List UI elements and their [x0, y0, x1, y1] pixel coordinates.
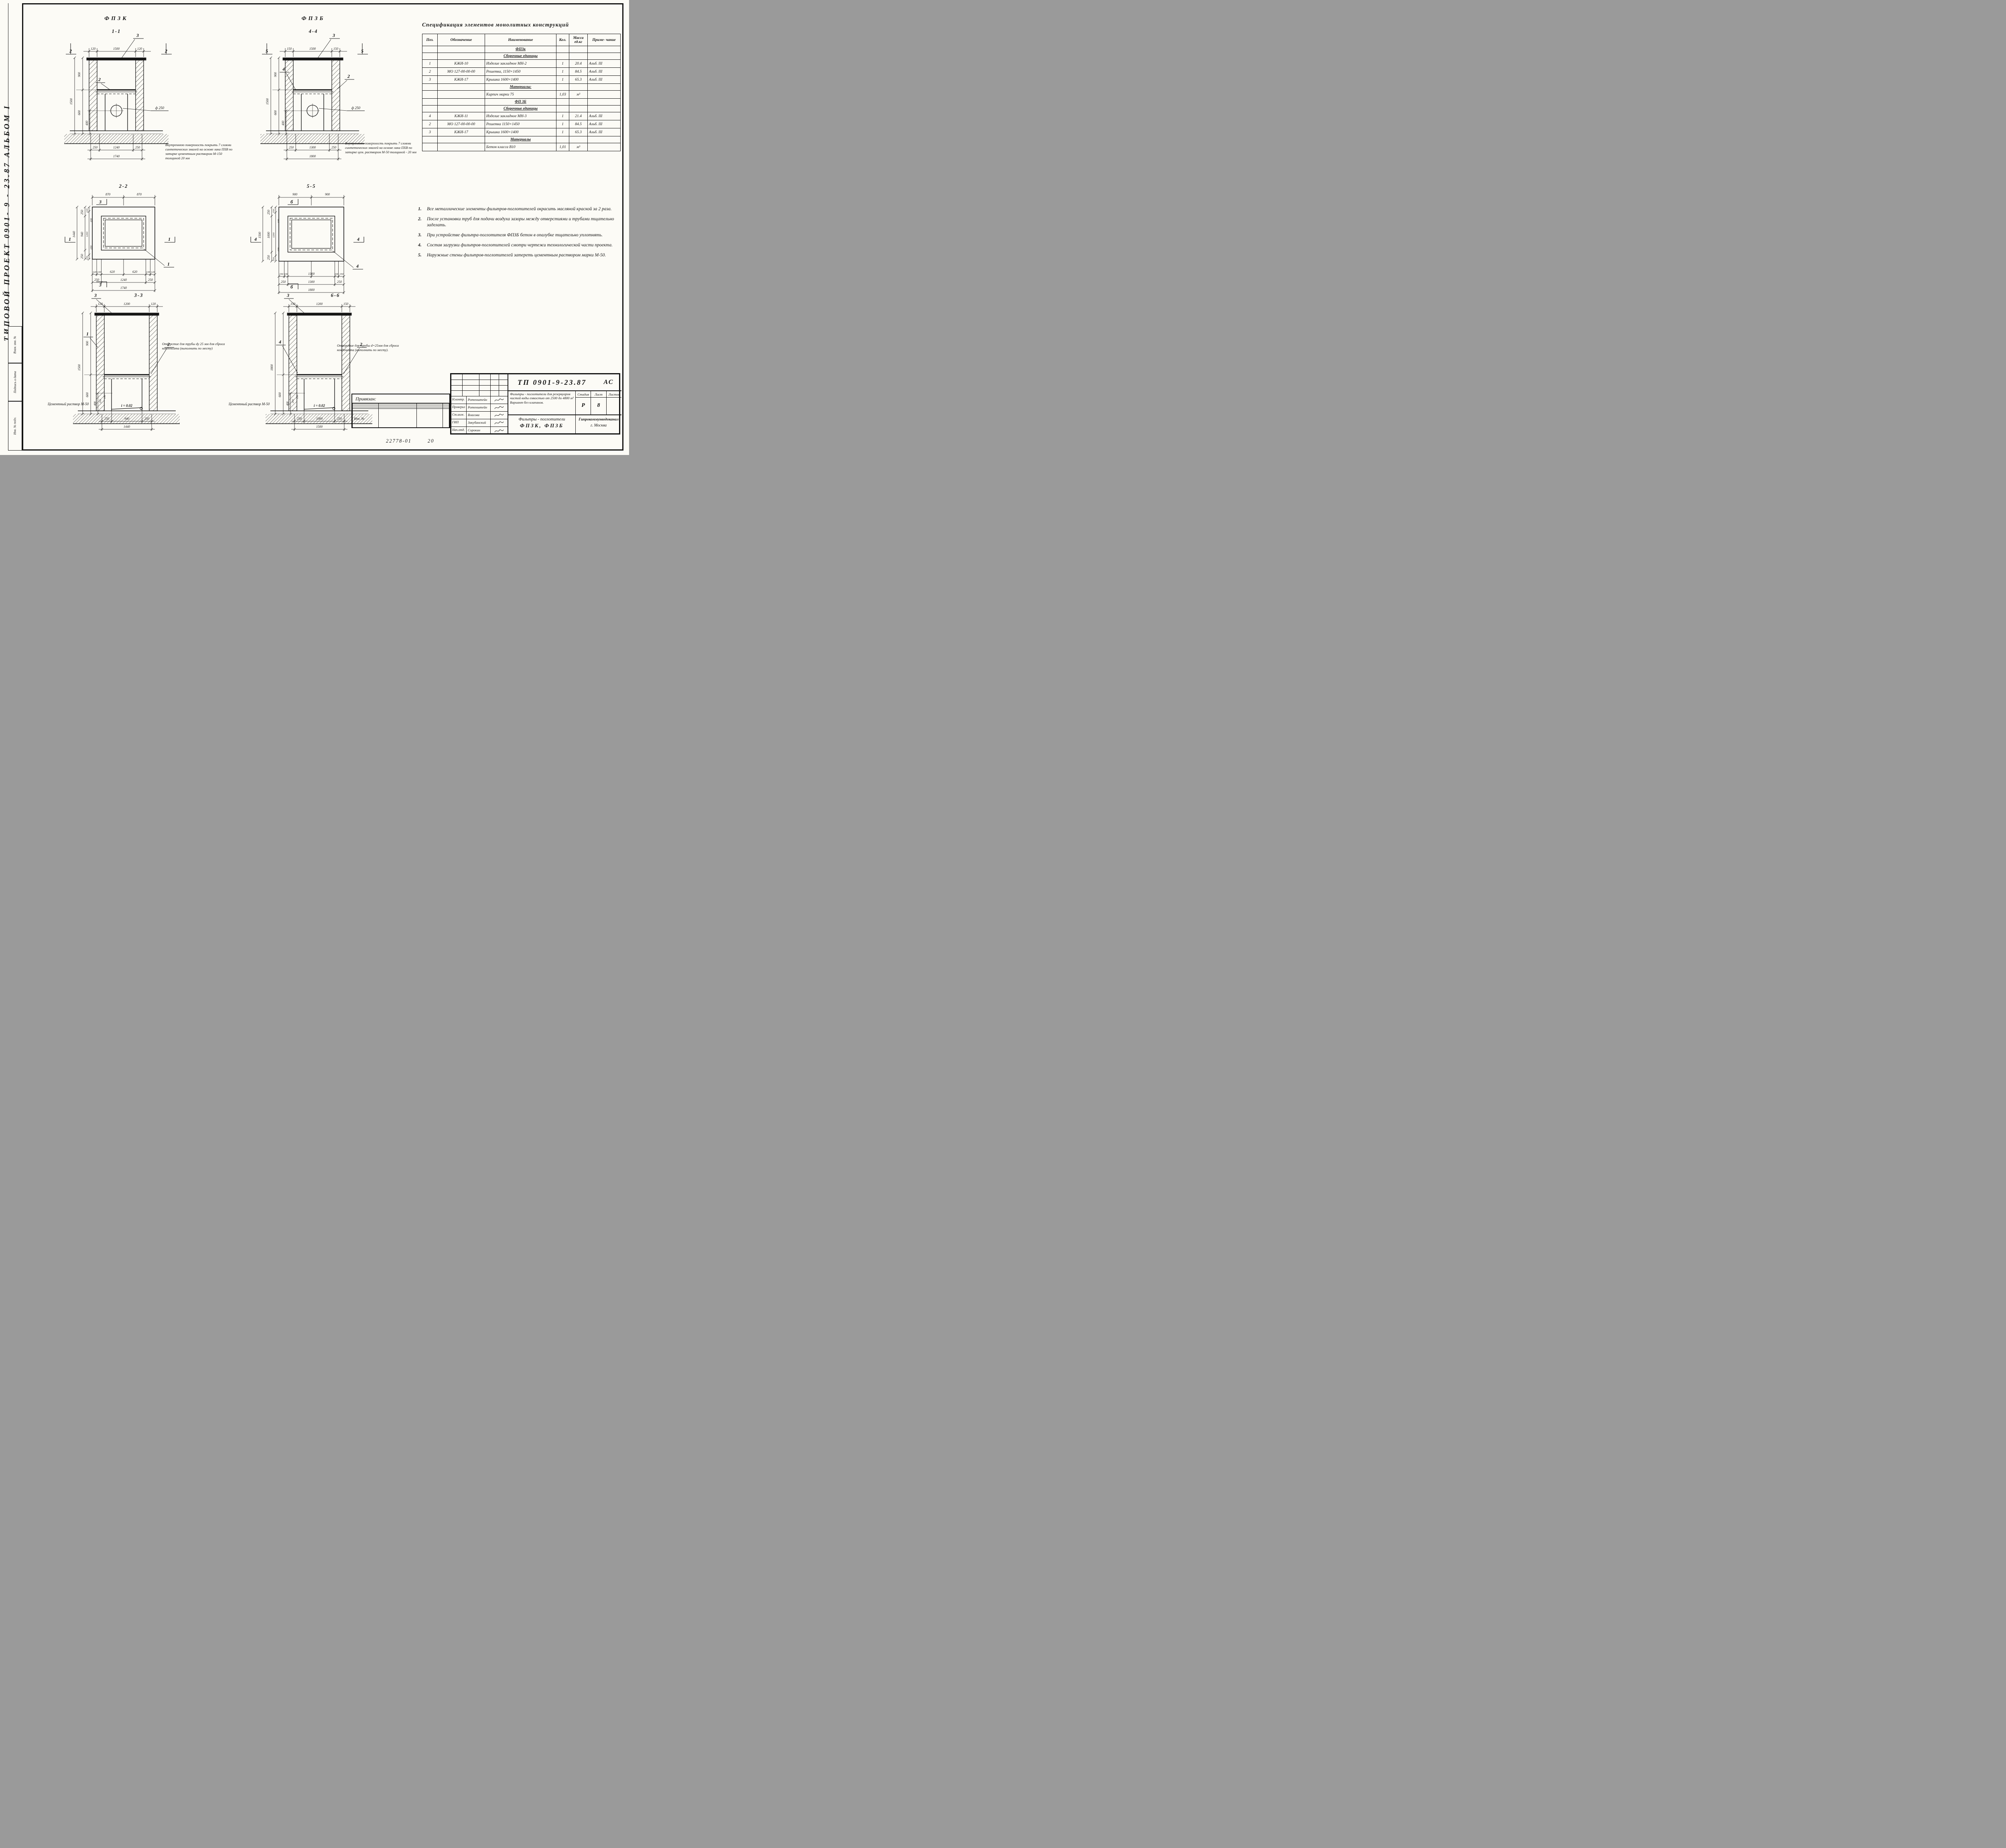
attach-box: Привязан: Инв. №	[351, 394, 450, 428]
dim-label: 870	[106, 193, 110, 196]
cell-mass: 21.4	[569, 112, 588, 120]
note-item: 1. Все металлические элементы фильтров-п…	[418, 206, 625, 212]
section-marker: 3	[99, 199, 102, 205]
signature-scribble	[491, 427, 508, 435]
dim-label: 600	[274, 110, 277, 115]
general-notes: 1. Все металлические элементы фильтров-п…	[418, 206, 625, 262]
cell-note	[588, 46, 621, 53]
dim-label: 1500	[69, 98, 73, 105]
dim-label: 1500	[258, 232, 262, 238]
archive-page: 20	[428, 438, 434, 444]
cell-pos: 4	[422, 112, 438, 120]
note-text: При устройстве фильтра-поглотителя ФПЗБ …	[427, 232, 603, 238]
col-header-mass: Масса ед.кг	[569, 34, 588, 46]
dim-label: 130	[97, 271, 102, 274]
note-number: 5.	[418, 252, 427, 258]
dim-label: 900	[85, 341, 89, 346]
dim-label: 1740	[120, 286, 127, 290]
dim-label: 250	[289, 146, 294, 149]
cell-mass: 84.5	[569, 68, 588, 76]
cell-note	[588, 84, 621, 91]
callout-1: 1	[167, 261, 170, 267]
dim-label: 150	[279, 273, 284, 276]
dim-label: 1500	[266, 98, 269, 105]
dim-label: 1500	[309, 47, 316, 51]
cell-qty: 1	[556, 112, 569, 120]
table-row: Материалы	[422, 136, 621, 143]
cell-qty: 1	[556, 76, 569, 84]
note-text: После установки труб для подачи воздуха …	[427, 216, 625, 228]
callout-3: 3	[332, 32, 335, 38]
dim-label: 1800	[270, 364, 274, 371]
drawing-name-cell: Фильтры - поглотители ФПЗК, ФПЗБ	[508, 415, 576, 435]
cell-pos	[422, 53, 438, 60]
cell-pos: 1	[422, 60, 438, 68]
dim-label: 1440	[72, 231, 76, 238]
table-row: Кирпич марки 75 1,03 м³	[422, 91, 621, 99]
cell-mass: 20.4	[569, 60, 588, 68]
side-box-inv: Инв. № подл.	[8, 401, 22, 451]
cell-qty	[556, 53, 569, 60]
cell-name: Материалы	[485, 136, 556, 143]
callout-4: 4	[282, 66, 285, 72]
signature-row: Н.контр. Ротенштейн	[451, 396, 508, 404]
cell-name: Изделие закладное МН-2	[485, 60, 556, 68]
dim-label: 250	[104, 417, 109, 420]
dim-label: 250	[135, 146, 140, 149]
cell-pos: 3	[422, 76, 438, 84]
dim-label: 250	[292, 399, 294, 403]
table-row: 3 КЖИ-17 Крышка 1600×1400 1 65.3 Альб. I…	[422, 128, 621, 136]
cell-qty: 1	[556, 120, 569, 128]
signature-scribble	[491, 404, 508, 411]
dim-label: 250	[337, 280, 342, 284]
sheets-value	[607, 398, 621, 414]
table-row: ФП 3Б	[422, 99, 621, 106]
cell-qty: 1	[556, 68, 569, 76]
cell-mark	[438, 46, 485, 53]
col-header-note: Приме- чание	[588, 34, 621, 46]
cell-qty: 1,01	[556, 143, 569, 151]
document-number: ТП 0901-9-23.87	[508, 378, 596, 387]
organization-cell: Гипрокоммунводоканал г. Москва	[576, 415, 621, 435]
cell-pos	[422, 136, 438, 143]
dim-label: 1240	[120, 278, 127, 282]
dim-label: 600	[85, 392, 89, 397]
revision-grid	[451, 374, 508, 396]
linework-2-2	[65, 195, 175, 292]
view-plan-5-5: 5-5	[223, 181, 379, 306]
section-label-5-5: 5-5	[307, 183, 316, 189]
col-header-qty: Кол.	[556, 34, 569, 46]
cell-mark	[438, 106, 485, 112]
dim-label: 250	[331, 146, 336, 149]
title-block: ТП 0901-9-23.87 АС Фильтры - поглотители…	[450, 373, 620, 435]
dim-label: 900	[325, 193, 330, 196]
cell-mass: м³	[569, 143, 588, 151]
dim-label: 1000	[267, 232, 270, 238]
note-item: 3. При устройстве фильтра-поглотителя ФП…	[418, 232, 625, 238]
dim-label: 1200	[124, 302, 130, 306]
organization-name: Гипрокоммунводоканал	[576, 418, 621, 422]
callout-1: 1	[86, 331, 89, 337]
signature-rows: Н.контр. Ротенштейн Проверил Ротенштейн	[451, 396, 508, 435]
dim-label: 1300	[309, 146, 316, 149]
note-text: Состав загрузки фильтров-поглотителей см…	[427, 242, 613, 248]
dim-label: 150	[104, 394, 106, 399]
dim-label: 100	[335, 273, 339, 276]
dim-label: 1300	[308, 272, 315, 276]
dim-label: 150	[272, 257, 275, 261]
dim-label: 400	[85, 121, 89, 126]
dim-label: 150	[343, 302, 348, 306]
signature-name: Ротенштейн	[467, 404, 491, 411]
cell-mass: м³	[569, 91, 588, 99]
section-label-1-1: 1-1	[112, 28, 121, 34]
cell-qty: 1	[556, 128, 569, 136]
dim-label: 130	[146, 271, 150, 274]
signature-scribble	[491, 412, 508, 419]
dim-label: 250	[337, 417, 342, 420]
note-number: 4.	[418, 242, 427, 248]
note-item: 4. Состав загрузки фильтров-поглотителей…	[418, 242, 625, 248]
stage-header: Стадия	[576, 391, 591, 397]
dim-label: 250	[267, 255, 270, 260]
cell-name: Крышка 1600×1400	[485, 128, 556, 136]
dim-label: 1240	[113, 146, 120, 149]
dim-label: 940	[124, 417, 129, 420]
cell-mark	[438, 53, 485, 60]
dim-label: 620	[110, 270, 115, 274]
note-text: Все металлические элементы фильтров-погл…	[427, 206, 612, 212]
dim-label: 250	[281, 280, 286, 284]
dim-label: 100	[277, 247, 280, 252]
dim-label: 120	[93, 271, 97, 274]
dim-label: 600	[77, 110, 81, 115]
dim-label: 1500	[316, 425, 323, 428]
callout-4: 4	[356, 263, 359, 269]
cell-mark	[438, 84, 485, 91]
section-marker: 4	[357, 236, 359, 242]
section-marker: 2	[164, 48, 167, 54]
document-number-cell: ТП 0901-9-23.87 АС	[508, 374, 621, 391]
dim-label: 250	[94, 278, 99, 282]
dim-label: 120	[91, 47, 95, 51]
col-header-pos: Поз.	[422, 34, 438, 46]
dim-label: 150	[333, 47, 338, 51]
cell-note: Альб. III	[588, 68, 621, 76]
section-marker: 1	[168, 236, 171, 242]
dim-label: 250	[144, 417, 149, 420]
dim-label: 900	[292, 193, 297, 196]
dim-label: 400	[281, 121, 285, 126]
dim-label: 1200	[316, 302, 323, 306]
signature-role: Ст.инж.	[451, 412, 467, 419]
callout-3: 3	[136, 32, 139, 38]
cell-pos	[422, 106, 438, 112]
cell-pos	[422, 46, 438, 53]
sheets-header: Листов	[607, 391, 621, 397]
cell-pos	[422, 143, 438, 151]
sheet-header: Лист	[591, 391, 606, 397]
dim-label: 120	[86, 256, 89, 260]
col-header-mark: Обозначение	[438, 34, 485, 46]
dim-label: 1440	[124, 425, 130, 428]
table-row: 2 МО 127-00-00-00 Решетка, 1150×1450 1 8…	[422, 68, 621, 76]
note-number: 2.	[418, 216, 427, 228]
dim-label: 250	[148, 278, 153, 282]
dim-diameter-label: ф 250	[155, 106, 164, 110]
section-marker: 4	[254, 236, 257, 242]
signature-row: Ст.инж. Власова	[451, 412, 508, 419]
dim-label: 1500	[77, 364, 81, 371]
table-row: Материалы:	[422, 84, 621, 91]
view-title-fpzb: ФПЗБ	[302, 16, 325, 22]
section-label-4-4: 4-4	[309, 28, 318, 34]
cell-qty	[556, 46, 569, 53]
dim-label: 1200	[86, 232, 89, 237]
dim-label: 1300	[308, 280, 315, 284]
signature-row: ГИП Закубанский	[451, 419, 508, 427]
cell-note: Альб. III	[588, 60, 621, 68]
table-row: Бетон класса В10 1,01 м³	[422, 143, 621, 151]
section-marker: б	[290, 284, 293, 290]
cell-mark	[438, 91, 485, 99]
side-box-podpis: Подпись и дата	[8, 363, 22, 401]
cell-qty	[556, 84, 569, 91]
note-drain-hole-6-6: Отверстие для трубы d=25мм для сброса ко…	[337, 343, 411, 352]
note-number: 3.	[418, 232, 427, 238]
table-row: Сборочные единицы	[422, 53, 621, 60]
cell-note	[588, 143, 621, 151]
organization-city: г. Москва	[576, 423, 621, 428]
dim-label: 400	[286, 401, 289, 406]
table-row: 4 КЖИ-11 Изделие закладное МН-3 1 21.4 А…	[422, 112, 621, 120]
note-inner-surface-fpzk: Внутреннюю поверхность покрыть 7 слоями …	[165, 143, 236, 160]
drawing-sheet: ТИПОВОЙ ПРОЕКТ 0901- 9 - 23.87 АЛЬБОМ I …	[0, 0, 629, 455]
table-row: ФПЗк	[422, 46, 621, 53]
callout-3: 3	[286, 292, 289, 298]
view-section-3-3: 3 3-3	[36, 291, 209, 432]
note-number: 1.	[418, 206, 427, 212]
cell-mark	[438, 143, 485, 151]
cell-pos	[422, 99, 438, 106]
table-row: Сборочные единицы	[422, 106, 621, 112]
cell-mark: КЖИ-17	[438, 128, 485, 136]
cell-note: Альб. III	[588, 120, 621, 128]
note-item: 2. После установки труб для подачи возду…	[418, 216, 625, 228]
section-marker: 1	[69, 236, 71, 242]
attach-grid: Инв. №	[352, 403, 449, 428]
cell-pos: 2	[422, 68, 438, 76]
dim-label: 900	[77, 72, 81, 77]
dim-label: 130	[90, 218, 93, 222]
cell-pos: 2	[422, 120, 438, 128]
note-item: 5. Наружные стены фильтров-поглотителей …	[418, 252, 625, 258]
cell-qty	[556, 136, 569, 143]
cell-mark	[438, 136, 485, 143]
dim-label: 120	[151, 302, 156, 306]
dim-label: 150	[272, 209, 275, 213]
spec-table: Поз. Обозначение Наименование Кол. Масса…	[422, 34, 621, 151]
cell-mass	[569, 84, 588, 91]
view-plan-2-2: 2-2	[40, 181, 189, 302]
dim-label: 150	[296, 394, 299, 399]
dim-label: 250	[80, 210, 84, 215]
cell-pos: 3	[422, 128, 438, 136]
sheet-value: 8	[591, 398, 606, 414]
dim-label: 100	[284, 273, 288, 276]
signature-row: Нач.отд. Сорокин	[451, 427, 508, 435]
table-row: 2 МО 127-00-00-00 Решетка 1150×1450 1 84…	[422, 120, 621, 128]
dim-label: 1200	[272, 232, 275, 238]
document-type: АС	[596, 379, 621, 386]
side-box-label: Взам. инв. №	[13, 336, 17, 353]
drawing-name: Фильтры - поглотители	[508, 417, 575, 422]
section-marker: 2	[69, 48, 72, 54]
signature-scribble	[491, 419, 508, 426]
cell-mass	[569, 46, 588, 53]
cell-note: Альб. III	[588, 112, 621, 120]
drawing-name-marks: ФПЗК, ФПЗБ	[508, 422, 575, 429]
callout-2: 2	[347, 73, 350, 79]
cell-note	[588, 136, 621, 143]
callout-3: 3	[94, 292, 97, 298]
cell-mark: КЖИ-11	[438, 112, 485, 120]
section-marker: 5	[266, 48, 268, 54]
cell-mark: МО 127-00-00-00	[438, 68, 485, 76]
side-box-label: Инв. № подл.	[13, 417, 17, 435]
view-fpzk-1-1: ФПЗК 1-1	[52, 11, 181, 188]
cell-pos	[422, 84, 438, 91]
cell-name: Материалы:	[485, 84, 556, 91]
cell-note	[588, 106, 621, 112]
cell-mark: КЖИ-17	[438, 76, 485, 84]
cell-name: Решетка 1150×1450	[485, 120, 556, 128]
signature-role: ГИП	[451, 419, 467, 426]
cell-note	[588, 99, 621, 106]
section-label-6-6: 6-6	[331, 292, 340, 298]
cell-mass: 65.3	[569, 76, 588, 84]
view-title-fpzk: ФПЗК	[104, 16, 128, 22]
cell-mass	[569, 106, 588, 112]
cell-name: Сборочные единицы	[485, 106, 556, 112]
cell-name: Решетка, 1150×1450	[485, 68, 556, 76]
spec-table-body: ФПЗк Сборочные единицы 1 КЖИ-10	[422, 46, 621, 151]
cell-mass	[569, 136, 588, 143]
dim-label: 1740	[113, 154, 120, 158]
note-text: Наружные стены фильтров-поглотителей зат…	[427, 252, 606, 258]
spec-table-title: Спецификация элементов монолитных констр…	[422, 22, 623, 28]
note-drain-hole-3-3: Отверстие для трубы dу 25 мм для сброса …	[162, 342, 226, 351]
section-label-3-3: 3-3	[134, 292, 144, 298]
cell-mark	[438, 99, 485, 106]
signature-name: Власова	[467, 412, 491, 419]
cell-name: Изделие закладное МН-3	[485, 112, 556, 120]
cell-mass	[569, 53, 588, 60]
side-box-vzam: Взам. инв. №	[8, 326, 22, 363]
dim-label: 900	[274, 72, 277, 77]
dim-label: 150	[290, 302, 295, 306]
col-header-name: Наименование	[485, 34, 556, 46]
signature-row: Проверил Ротенштейн	[451, 404, 508, 412]
spec-header-row: Поз. Обозначение Наименование Кол. Масса…	[422, 34, 621, 46]
project-description: Фильтры - поглотители для резервуаров чи…	[508, 391, 576, 415]
dim-label: 1800	[309, 154, 316, 158]
dim-label: 150	[339, 273, 344, 276]
cell-name: Крышка 1600×1400	[485, 76, 556, 84]
cell-name: Сборочные единицы	[485, 53, 556, 60]
cell-qty: 1,03	[556, 91, 569, 99]
callout-4: 4	[278, 339, 281, 345]
dim-label: 120	[137, 47, 142, 51]
linework-1-1	[64, 39, 172, 160]
dim-label: 120	[86, 208, 89, 213]
dim-label: 940	[80, 232, 84, 237]
label-cement-mortar-6-6: Цементный раствор М-50	[223, 402, 275, 406]
dim-label: 250	[93, 146, 97, 149]
callout-2: 2	[98, 77, 101, 82]
dim-label: 250	[99, 399, 102, 403]
signature-scribble	[491, 396, 508, 404]
cell-name: Бетон класса В10	[485, 143, 556, 151]
cell-mark: КЖИ-10	[438, 60, 485, 68]
linework-3-3	[73, 299, 180, 431]
dim-label: 250	[297, 417, 302, 420]
dim-label: 250	[267, 210, 270, 215]
cell-name: ФПЗк	[485, 46, 556, 53]
signature-role: Н.контр.	[451, 396, 467, 404]
cell-qty	[556, 99, 569, 106]
dim-label: 620	[132, 270, 137, 274]
cell-qty	[556, 106, 569, 112]
dim-label: 120	[98, 302, 103, 306]
cell-mass	[569, 99, 588, 106]
attach-label: Привязан:	[352, 394, 449, 403]
archive-number: 22778-01	[386, 438, 412, 444]
dim-label: 150	[287, 47, 292, 51]
cell-name: ФП 3Б	[485, 99, 556, 106]
section-marker: 5	[361, 48, 363, 54]
signature-name: Закубанский	[467, 419, 491, 426]
table-row: 3 КЖИ-17 Крышка 1600×1400 1 65.3 Альб. I…	[422, 76, 621, 84]
cell-note: Альб. III	[588, 128, 621, 136]
slope-label: i = 0.02	[314, 404, 325, 408]
dim-label: 1500	[113, 47, 120, 51]
dim-label: 130	[90, 245, 93, 250]
cell-note: Альб. III	[588, 76, 621, 84]
dim-label: 600	[278, 392, 282, 397]
dim-label: 250	[80, 254, 84, 259]
label-cement-mortar-3-3: Цементный раствор М-50	[40, 402, 96, 406]
section-marker: 3	[99, 282, 102, 288]
cell-note	[588, 91, 621, 99]
view-fpzb-4-4: ФПЗБ 4-4	[247, 11, 379, 188]
cell-mark: МО 127-00-00-00	[438, 120, 485, 128]
side-box-label: Подпись и дата	[13, 371, 17, 393]
table-row: 1 КЖИ-10 Изделие закладное МН-2 1 20.4 А…	[422, 60, 621, 68]
dim-label: 100	[277, 219, 280, 223]
section-marker: б	[290, 199, 293, 205]
cell-mass: 65.3	[569, 128, 588, 136]
dim-label: 870	[137, 193, 142, 196]
cell-pos	[422, 91, 438, 99]
cell-note	[588, 53, 621, 60]
cell-name: Кирпич марки 75	[485, 91, 556, 99]
attach-inv-label: Инв. №	[353, 409, 379, 428]
signature-name: Ротенштейн	[467, 396, 491, 404]
stage-value: Р	[576, 398, 591, 414]
